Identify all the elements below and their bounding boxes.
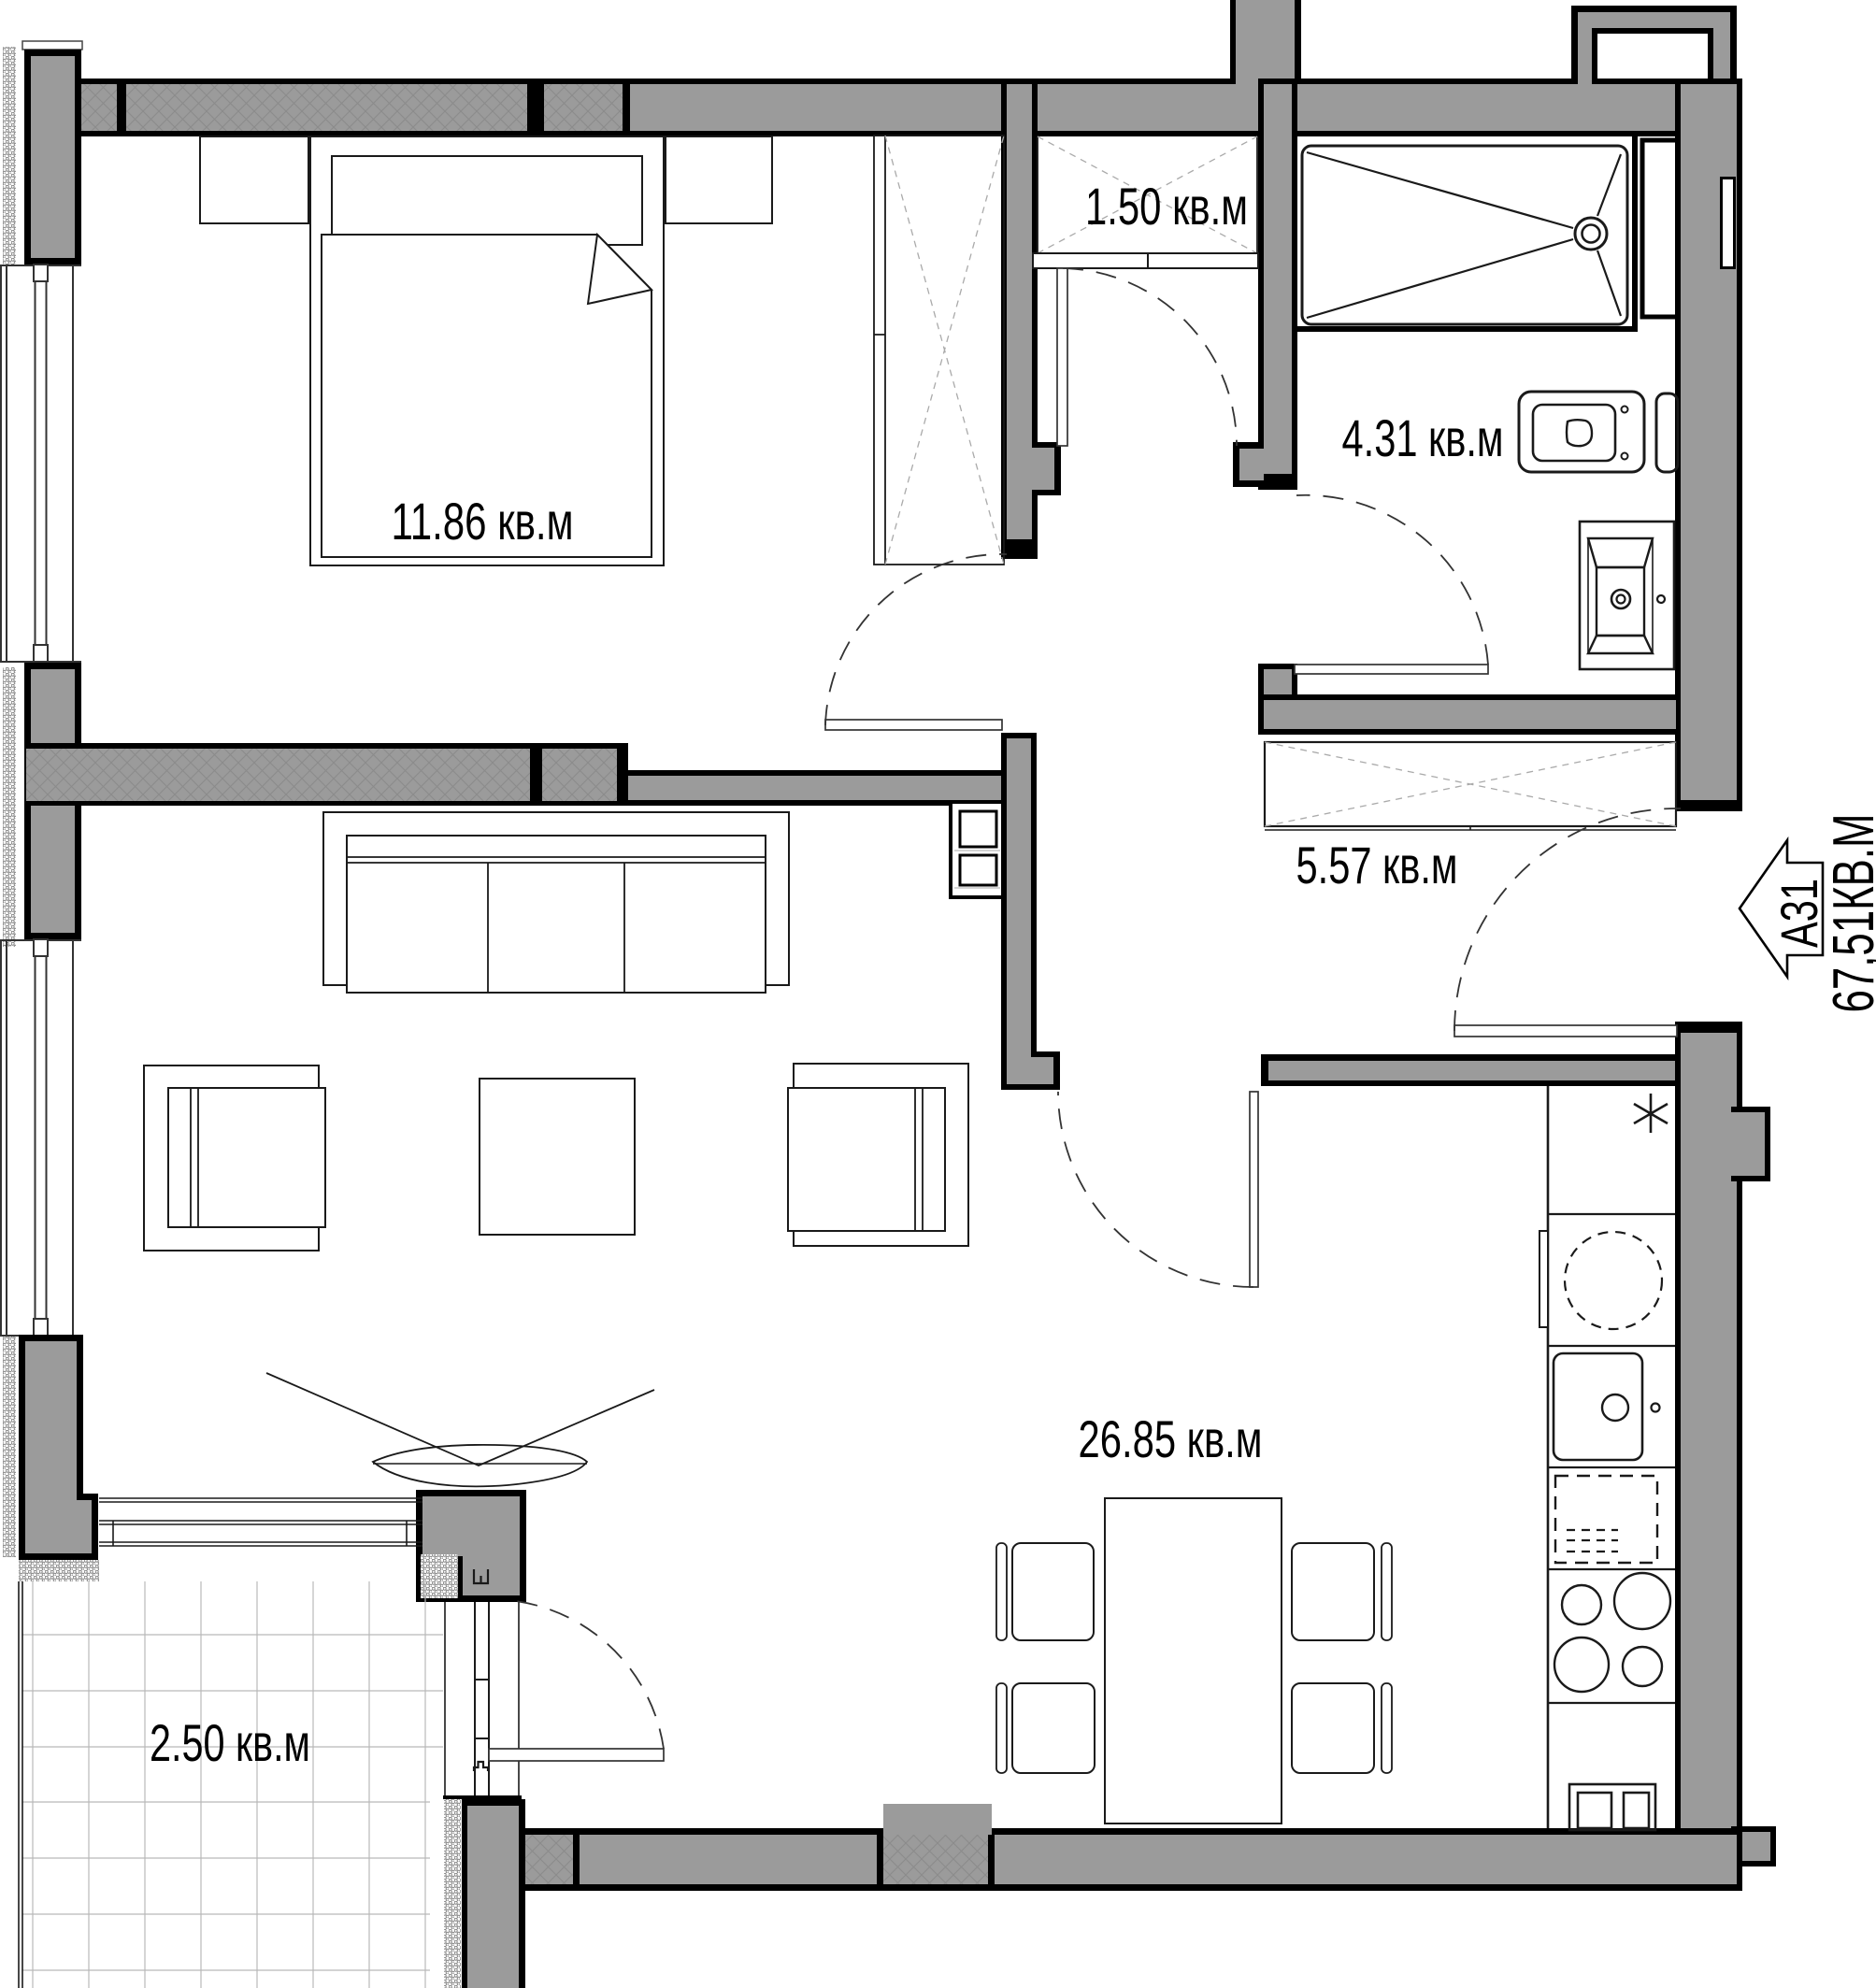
svg-text:26.85 кв.м: 26.85 кв.м xyxy=(1079,1409,1263,1468)
svg-text:1.50 кв.м: 1.50 кв.м xyxy=(1085,177,1248,236)
svg-text:А31: А31 xyxy=(1769,879,1828,948)
svg-text:4.31 кв.м: 4.31 кв.м xyxy=(1342,408,1504,467)
svg-text:11.86 кв.м: 11.86 кв.м xyxy=(392,492,574,551)
svg-text:2.50 кв.м: 2.50 кв.м xyxy=(150,1713,310,1772)
svg-text:67,51КВ.М: 67,51КВ.М xyxy=(1822,814,1876,1013)
svg-text:5.57 кв.м: 5.57 кв.м xyxy=(1296,836,1458,894)
